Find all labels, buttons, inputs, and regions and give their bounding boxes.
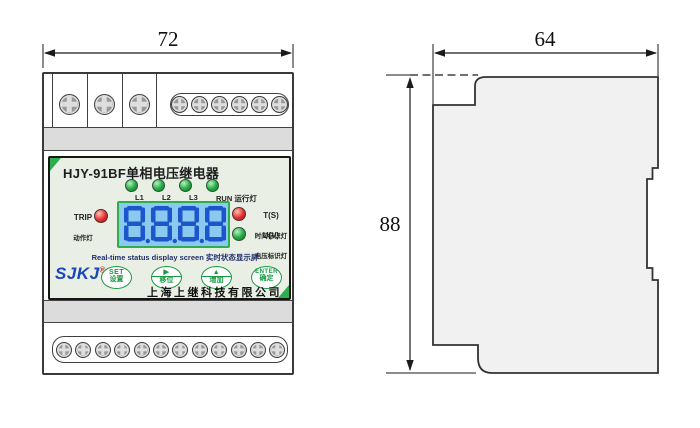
side-profile-outline	[433, 77, 658, 373]
terminal-divider	[87, 74, 88, 127]
screw-terminal	[269, 342, 285, 358]
indicator-led-L3	[179, 179, 192, 192]
screw-terminal	[114, 342, 130, 358]
lower-recess-band	[44, 300, 292, 323]
screw-terminal	[231, 96, 248, 113]
screw-terminal	[59, 94, 80, 115]
front-width-dimension: 72	[148, 27, 188, 52]
screw-terminal	[75, 342, 91, 358]
screw-terminal	[172, 342, 188, 358]
upper-recess-band	[44, 127, 292, 151]
front-panel: HJY-91BF单相电压继电器 L1L2L3RUN 运行灯 TRIP 动作灯 T…	[48, 156, 291, 300]
arrowhead-up	[406, 77, 413, 88]
button-top-label: SET	[102, 269, 131, 276]
indicator-led-RUN	[206, 179, 219, 192]
panel-corner-triangle	[50, 158, 61, 171]
trip-led	[94, 209, 108, 223]
indicator-led-L2	[152, 179, 165, 192]
terminal-divider	[156, 74, 157, 127]
side-height-dimension: 88	[376, 212, 404, 237]
brand-logo: SJKJ®	[55, 264, 106, 284]
technical-drawing-canvas: 72 64 88 HJY-91BF单相电压继电器 L1L2L3RUN 运行灯	[0, 0, 700, 428]
screw-terminal	[95, 342, 111, 358]
time-led	[232, 207, 246, 221]
screw-terminal	[271, 96, 288, 113]
screw-terminal	[250, 342, 266, 358]
screw-terminal	[171, 96, 188, 113]
screw-terminal	[56, 342, 72, 358]
screw-terminal	[191, 96, 208, 113]
screw-terminal	[129, 94, 150, 115]
screw-terminal	[134, 342, 150, 358]
screw-terminal	[192, 342, 208, 358]
relay-front-view: HJY-91BF单相电压继电器 L1L2L3RUN 运行灯 TRIP 动作灯 T…	[42, 72, 294, 375]
product-model-title: HJY-91BF单相电压继电器	[63, 163, 219, 182]
arrowhead-right	[281, 49, 292, 56]
screw-terminal	[211, 96, 228, 113]
terminal-divider	[122, 74, 123, 127]
arrowhead-left	[434, 49, 445, 56]
button-top-label: ▶	[152, 269, 181, 277]
screw-terminal	[251, 96, 268, 113]
arrowhead-right	[646, 49, 657, 56]
lcd-caption: Real-time status display screen 实时状态显示屏	[75, 252, 275, 263]
arrowhead-left	[44, 49, 55, 56]
voltage-led	[232, 227, 246, 241]
screw-terminal	[231, 342, 247, 358]
terminal-divider	[52, 74, 53, 127]
screw-terminal	[94, 94, 115, 115]
indicator-led-L1	[125, 179, 138, 192]
button-bottom-label: 确定	[252, 275, 281, 282]
button-set[interactable]: SET设置	[101, 266, 132, 289]
seven-segment-digits	[119, 203, 228, 246]
button-top-label: ▲	[202, 269, 231, 277]
screw-terminal	[211, 342, 227, 358]
button-top-label: ENTER	[252, 269, 281, 275]
screw-terminal	[153, 342, 169, 358]
button-bottom-label: 设置	[102, 276, 131, 283]
lcd-display	[117, 201, 230, 248]
arrowhead-down	[406, 360, 413, 371]
side-width-dimension: 64	[525, 27, 565, 52]
company-name: 上海上继科技有限公司	[147, 284, 282, 300]
